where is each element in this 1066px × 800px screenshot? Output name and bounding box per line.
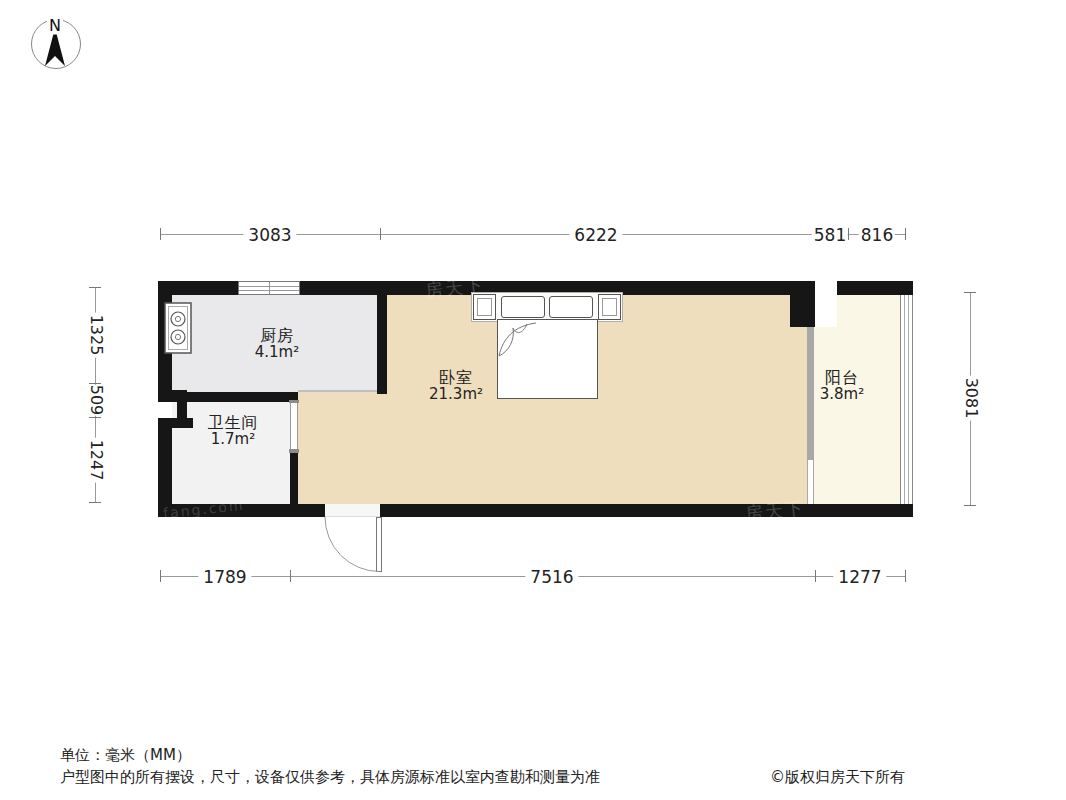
pillow-left <box>501 296 545 318</box>
bathroom-door-jamb-top <box>289 400 299 403</box>
bathroom-name: 卫生间 <box>208 414 259 431</box>
kitchen-window-mullion <box>269 282 270 294</box>
dim-tick <box>964 292 976 293</box>
left-wall-lower <box>158 418 172 517</box>
dim-tick <box>815 570 816 582</box>
dim-tick <box>160 228 161 240</box>
dim-left-509: 509 <box>88 385 104 416</box>
dim-tick <box>905 228 906 240</box>
compass-north-label: N <box>47 16 63 35</box>
blanket-fold <box>498 320 538 358</box>
entry-door-swing-arc <box>320 515 386 577</box>
dim-tick <box>89 287 101 288</box>
footer-copyright: ©版权归房天下所有 <box>770 768 905 787</box>
balcony-label: 阳台 3.8m² <box>820 369 864 403</box>
dim-bottom-1789: 1789 <box>198 568 251 587</box>
bathroom-label: 卫生间 1.7m² <box>208 414 259 448</box>
nightstand-left <box>473 294 496 320</box>
dim-right-3081: 3081 <box>962 376 980 421</box>
dim-top-581: 581 <box>812 226 848 245</box>
kitchen-name: 厨房 <box>255 327 299 344</box>
dim-top-6222: 6222 <box>569 226 622 245</box>
bedroom-name: 卧室 <box>429 369 483 386</box>
dim-bottom-1277: 1277 <box>833 568 886 587</box>
bedroom-label: 卧室 21.3m² <box>429 369 483 403</box>
kitchen-bedroom-wall <box>377 295 387 394</box>
dim-left-1247: 1247 <box>87 438 105 483</box>
dim-tick <box>905 570 906 582</box>
bedroom-area: 21.3m² <box>429 386 483 403</box>
floor-plan-page: N <box>0 0 1066 800</box>
balcony-fixed-panel <box>807 460 814 504</box>
dim-left-1325: 1325 <box>87 313 105 358</box>
dim-tick <box>290 570 291 582</box>
bed <box>497 319 598 399</box>
exterior-notch <box>815 281 837 327</box>
balcony-window-glazing-line <box>908 295 909 504</box>
bathroom-bedroom-wall <box>290 452 298 504</box>
balcony-top-wall <box>837 281 913 295</box>
dim-tick <box>89 417 101 418</box>
nightstand-inset <box>602 298 617 316</box>
kitchen-window <box>238 281 300 295</box>
dim-tick <box>160 570 161 582</box>
footer-disclaimer: 户型图中的所有摆设，尺寸，设备仅供参考，具体房源标准以室内查勘和测量为准 <box>60 768 600 787</box>
kitchen-label: 厨房 4.1m² <box>255 327 299 361</box>
dim-tick <box>89 502 101 503</box>
pillow-right <box>549 296 593 318</box>
bottom-wall-right <box>380 504 913 517</box>
bedroom-floor-strip <box>298 392 387 504</box>
balcony-sliding-door-panel <box>807 327 814 460</box>
bathroom-door-opening <box>290 402 298 452</box>
dim-tick <box>380 228 381 240</box>
watermark-brand: 房天下 <box>744 496 806 526</box>
footer-unit-note: 单位：毫米（MM） <box>60 746 191 765</box>
balcony-area: 3.8m² <box>820 386 864 403</box>
bathroom-area: 1.7m² <box>208 431 259 448</box>
dim-top-816: 816 <box>859 226 895 245</box>
stove-icon <box>164 302 192 354</box>
kitchen-area: 4.1m² <box>255 344 299 361</box>
balcony-name: 阳台 <box>820 369 864 386</box>
dim-bottom-7516: 7516 <box>525 568 578 587</box>
nightstand-inset <box>477 298 492 316</box>
balcony-window-glazing-line <box>904 295 905 504</box>
bedroom-balcony-column <box>790 281 815 327</box>
nightstand-right <box>598 294 621 320</box>
bathroom-door-jamb-bottom <box>289 449 299 453</box>
kitchen-bathroom-wall <box>158 392 298 402</box>
balcony-window <box>900 295 913 504</box>
dim-tick <box>964 505 976 506</box>
dim-top-3083: 3083 <box>243 226 296 245</box>
